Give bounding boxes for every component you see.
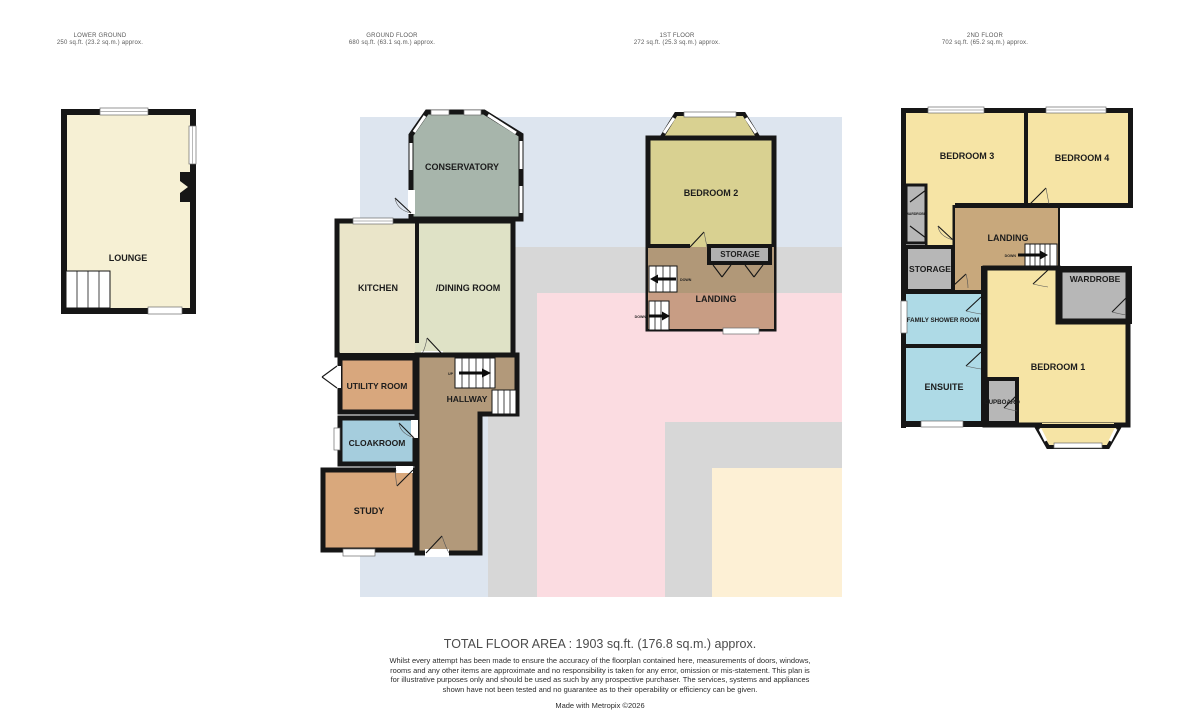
label-down: DOWN (1005, 254, 1017, 258)
label-bedroom1: BEDROOM 1 (1031, 362, 1086, 372)
label-cloakroom: CLOAKROOM (349, 438, 406, 448)
label-conservatory: CONSERVATORY (425, 162, 499, 172)
label-storage2: STORAGE (909, 264, 951, 274)
window (334, 428, 340, 450)
wall (1128, 266, 1132, 324)
label-ensuite: ENSUITE (924, 382, 963, 392)
wall (1058, 266, 1132, 270)
label-hallway: HALLWAY (447, 394, 488, 404)
staircase-lounge (66, 271, 110, 308)
made-with-credit: Made with Metropix ©2026 (0, 701, 1200, 710)
label-dining: /DINING ROOM (436, 283, 501, 293)
label-bedroom4: BEDROOM 4 (1055, 153, 1110, 163)
wall-bedroom2-landing (648, 244, 690, 248)
label-cupboard: CUPBOARD (984, 399, 1020, 406)
wall (953, 205, 956, 245)
label-family-shower: FAMILY SHOWER ROOM (907, 317, 980, 324)
bay-window-bedroom1 (1036, 423, 1120, 448)
total-floor-area: TOTAL FLOOR AREA : 1903 sq.ft. (176.8 sq… (0, 637, 1200, 651)
window (464, 110, 481, 115)
wall (1128, 108, 1133, 208)
label-storage1: STORAGE (720, 250, 760, 259)
window (723, 328, 759, 334)
label-bedroom3: BEDROOM 3 (940, 151, 995, 161)
label-wardrobe-small: WARDROBE (906, 212, 927, 216)
staircase-turn (492, 390, 516, 414)
window (343, 549, 375, 556)
window (921, 421, 963, 427)
wall (903, 290, 986, 294)
floorplan-canvas: LOUNGE CONSERVATORY KITCHEN /DINING ROOM (0, 0, 1200, 715)
floorplan-page: LOWER GROUND 250 sq.ft. (23.2 sq.m.) app… (0, 0, 1200, 715)
wall (955, 203, 1029, 208)
label-study: STUDY (354, 506, 385, 516)
door-opening (408, 190, 415, 214)
label-landing2: LANDING (988, 233, 1029, 243)
disclaimer-text: Whilst every attempt has been made to en… (385, 656, 815, 694)
label-utility: UTILITY ROOM (347, 381, 408, 391)
label-kitchen: KITCHEN (358, 283, 398, 293)
label-lounge: LOUNGE (109, 253, 148, 263)
label-bedroom2: BEDROOM 2 (684, 188, 739, 198)
wall (903, 344, 986, 348)
staircase-down-lower (649, 301, 670, 330)
label-landing1: LANDING (696, 294, 737, 304)
staircase-down-upper (649, 266, 677, 292)
overlay-cream (712, 468, 842, 597)
wall-bed3-bed4 (1024, 110, 1028, 205)
wall (1027, 203, 1131, 208)
door-opening (334, 366, 341, 388)
staircase-up (455, 358, 495, 388)
window (431, 110, 449, 115)
label-down: DOWN (680, 278, 692, 282)
window (148, 307, 182, 314)
label-down: DOWN (635, 315, 647, 319)
wall-kitchen-divider (415, 221, 419, 343)
label-up: UP (448, 372, 454, 376)
label-wardrobe: WARDROBE (1070, 274, 1121, 284)
